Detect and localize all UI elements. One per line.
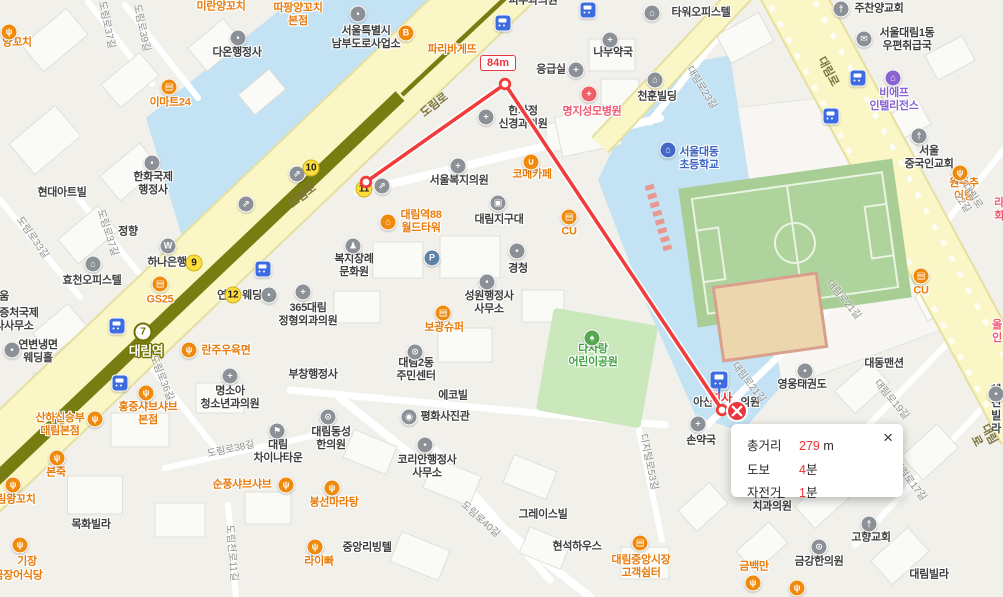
total-distance-unit: m	[820, 439, 834, 453]
walk-time-unit: 분	[806, 463, 818, 477]
map-canvas[interactable]: 미란양꼬치따팡양꼬치 본점양꼬치ψ이마트24▤다온행정사▪서울특별시 남부도로사…	[0, 0, 1003, 597]
popup-close-icon[interactable]: ×	[883, 429, 893, 446]
total-distance-label: 총거리	[747, 435, 799, 454]
bike-time-unit: 분	[806, 486, 818, 500]
popup-row-bike: 자전거1분	[747, 482, 903, 501]
walk-time-value: 4	[799, 463, 806, 477]
bike-time-label: 자전거	[747, 482, 799, 501]
popup-row-total: 총거리279 m	[747, 435, 903, 454]
route-delete-icon[interactable]	[727, 401, 747, 421]
segment-distance-label: 84m	[480, 55, 516, 71]
walk-time-label: 도보	[747, 459, 799, 478]
measurement-popup: 총거리279 m 도보4분 자전거1분 ×	[731, 424, 903, 497]
bike-time-value: 1	[799, 486, 806, 500]
total-distance-value: 279	[799, 439, 820, 453]
route-vertex-markers	[361, 79, 727, 415]
popup-row-walk: 도보4분	[747, 459, 903, 478]
measurement-route	[0, 0, 1003, 597]
